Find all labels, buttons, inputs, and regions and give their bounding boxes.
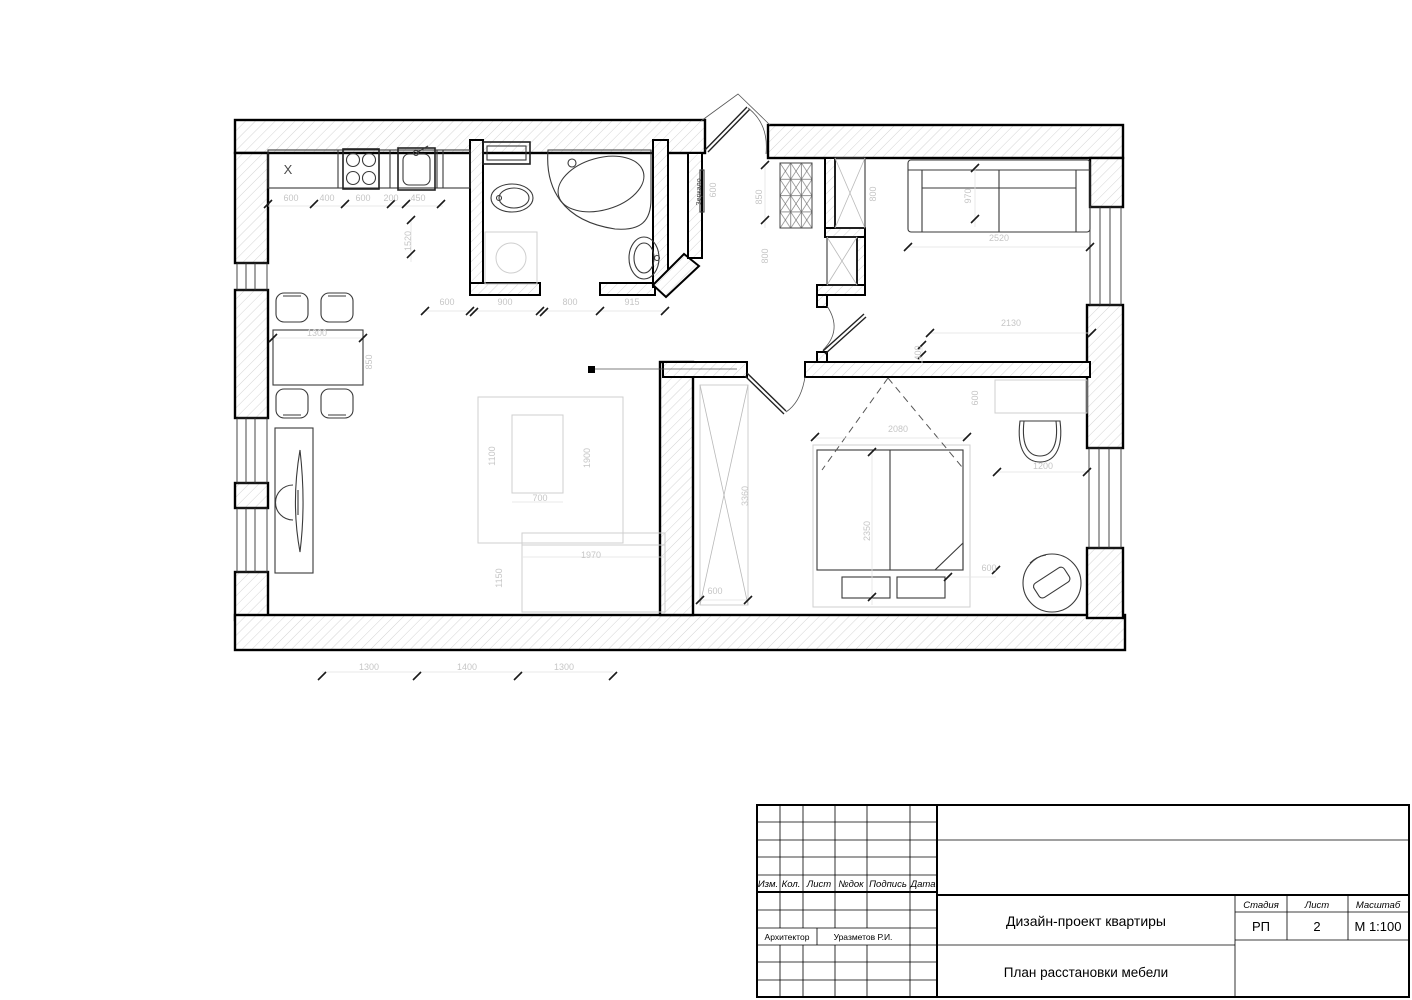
floor-plan: 6004006002004501520600900800915600850800… bbox=[0, 0, 1412, 1000]
desk-chair bbox=[1019, 421, 1061, 462]
project-title: Дизайн-проект квартиры bbox=[1006, 913, 1166, 929]
dimension-label: 450 bbox=[410, 193, 425, 203]
washing-machine bbox=[485, 232, 537, 284]
window bbox=[1089, 448, 1121, 548]
desk bbox=[995, 380, 1087, 413]
title-block: Изм. Кол. Лист №док Подпись Дата Архитек… bbox=[757, 805, 1409, 997]
dimension-label: 2130 bbox=[1001, 318, 1021, 328]
dimension-label: 600 bbox=[283, 193, 298, 203]
wall-closet-5 bbox=[817, 295, 827, 307]
wall-bath-left bbox=[470, 140, 483, 295]
wall-left-pier bbox=[235, 483, 268, 508]
washbasin bbox=[629, 237, 660, 279]
dimension-label: 2080 bbox=[888, 424, 908, 434]
window bbox=[237, 418, 267, 483]
dimension-label: 970 bbox=[963, 188, 973, 203]
tv-console bbox=[275, 428, 313, 573]
sheet-title: План расстановки мебели bbox=[1004, 965, 1168, 980]
wall-bottom bbox=[235, 615, 1125, 650]
dimension-label: 600 bbox=[708, 182, 718, 197]
dimension-label: 600 bbox=[707, 586, 722, 596]
chair bbox=[321, 293, 353, 322]
architect-label: Архитектор bbox=[765, 932, 810, 942]
dimension-label: 600 bbox=[355, 193, 370, 203]
plan-labels: Зеркало X bbox=[284, 162, 703, 206]
wall-left-1 bbox=[235, 153, 268, 263]
dimension-label: 1970 bbox=[581, 550, 601, 560]
sofa bbox=[908, 160, 1090, 232]
dimension-label: 800 bbox=[562, 297, 577, 307]
hall-closet bbox=[835, 158, 865, 228]
dimension-label: 800 bbox=[760, 248, 770, 263]
coffee-table bbox=[512, 415, 563, 493]
rev-col-list: Лист bbox=[806, 879, 832, 890]
dimension-label: 2520 bbox=[989, 233, 1009, 243]
window bbox=[237, 263, 267, 290]
lounge-sofa bbox=[522, 533, 665, 612]
wall-closet-2 bbox=[825, 228, 865, 237]
kitchen-mark: X bbox=[284, 162, 293, 177]
armchair bbox=[1023, 554, 1081, 612]
dimension-label: 1300 bbox=[307, 328, 327, 338]
rev-col-izm: Изм. bbox=[758, 879, 778, 890]
wall-corridor-left bbox=[663, 362, 747, 377]
rev-col-data: Дата bbox=[909, 879, 935, 890]
wall-closet-3 bbox=[857, 237, 865, 285]
stage-label: Стадия bbox=[1243, 900, 1279, 911]
dimension-label: 800 bbox=[868, 186, 878, 201]
dimension-label: 600 bbox=[970, 390, 980, 405]
drawing-sheet: 6004006002004501520600900800915600850800… bbox=[0, 0, 1412, 1000]
sheet-number: 2 bbox=[1313, 919, 1320, 934]
tv bbox=[276, 450, 304, 552]
bathtub bbox=[548, 147, 651, 229]
dimension-label: 1400 bbox=[457, 662, 477, 672]
stove bbox=[343, 149, 379, 189]
wall-bath-right bbox=[653, 140, 668, 287]
wall-closet-1 bbox=[825, 158, 835, 228]
architect-name: Уразметов Р.И. bbox=[834, 932, 893, 942]
scale-value: М 1:100 bbox=[1355, 919, 1402, 934]
dimension-label: 1100 bbox=[487, 446, 497, 465]
dimension-label: 1300 bbox=[554, 662, 574, 672]
rug bbox=[478, 397, 623, 543]
rev-col-doc: №док bbox=[838, 879, 864, 890]
toilet bbox=[491, 184, 533, 212]
wall-closet-4 bbox=[817, 285, 865, 295]
sheet-label: Лист bbox=[1304, 900, 1330, 911]
wall-left-bottom bbox=[235, 572, 268, 620]
dimension-label: 2350 bbox=[862, 521, 872, 541]
dimension-label: 900 bbox=[497, 297, 512, 307]
bedroom-door bbox=[745, 373, 805, 414]
kitchen-counter bbox=[268, 150, 470, 188]
dimension-label: 600 bbox=[981, 563, 996, 573]
wall-top-right bbox=[768, 125, 1123, 158]
dimension-label: 1150 bbox=[494, 568, 504, 587]
dimension-label: 1900 bbox=[582, 448, 592, 468]
scale-label: Масштаб bbox=[1356, 900, 1401, 911]
chair bbox=[276, 389, 308, 418]
dimension-label: 915 bbox=[624, 297, 639, 307]
dimension-label: 850 bbox=[754, 189, 764, 204]
wall-corridor-right bbox=[805, 362, 1090, 377]
shoe-cabinet bbox=[780, 163, 812, 228]
rev-col-podpis: Подпись bbox=[869, 879, 907, 890]
chair bbox=[321, 389, 353, 418]
hall-door bbox=[823, 306, 866, 354]
wall-right-low bbox=[1087, 548, 1123, 618]
window bbox=[237, 508, 267, 572]
wall-right-corner bbox=[1090, 158, 1123, 207]
entry-door bbox=[701, 94, 770, 154]
dimension-label: 400 bbox=[319, 193, 334, 203]
wall-bath-bottom-left bbox=[470, 283, 540, 295]
hall-closet bbox=[827, 237, 857, 285]
dimension-label: 700 bbox=[532, 493, 547, 503]
bed bbox=[813, 445, 970, 607]
wall-bath-bottom-right bbox=[600, 283, 655, 295]
dimension-label: 1520 bbox=[403, 231, 413, 251]
dimension-label: 200 bbox=[383, 193, 398, 203]
bed-bench bbox=[842, 577, 945, 598]
window bbox=[1090, 207, 1121, 305]
dimension-label: 600 bbox=[439, 297, 454, 307]
stage-value: РП bbox=[1252, 919, 1270, 934]
dimension-label: 400 bbox=[913, 345, 923, 360]
dimension-label: 850 bbox=[364, 354, 374, 369]
wall-left-2 bbox=[235, 290, 268, 418]
dimension-label: 3360 bbox=[740, 486, 750, 506]
wall-right-mid bbox=[1087, 305, 1123, 448]
rev-col-kol: Кол. bbox=[782, 879, 801, 890]
dimension-label: 1300 bbox=[359, 662, 379, 672]
dimension-label: 1200 bbox=[1033, 461, 1053, 471]
mirror-label: Зеркало bbox=[696, 178, 703, 205]
chair bbox=[276, 293, 308, 322]
